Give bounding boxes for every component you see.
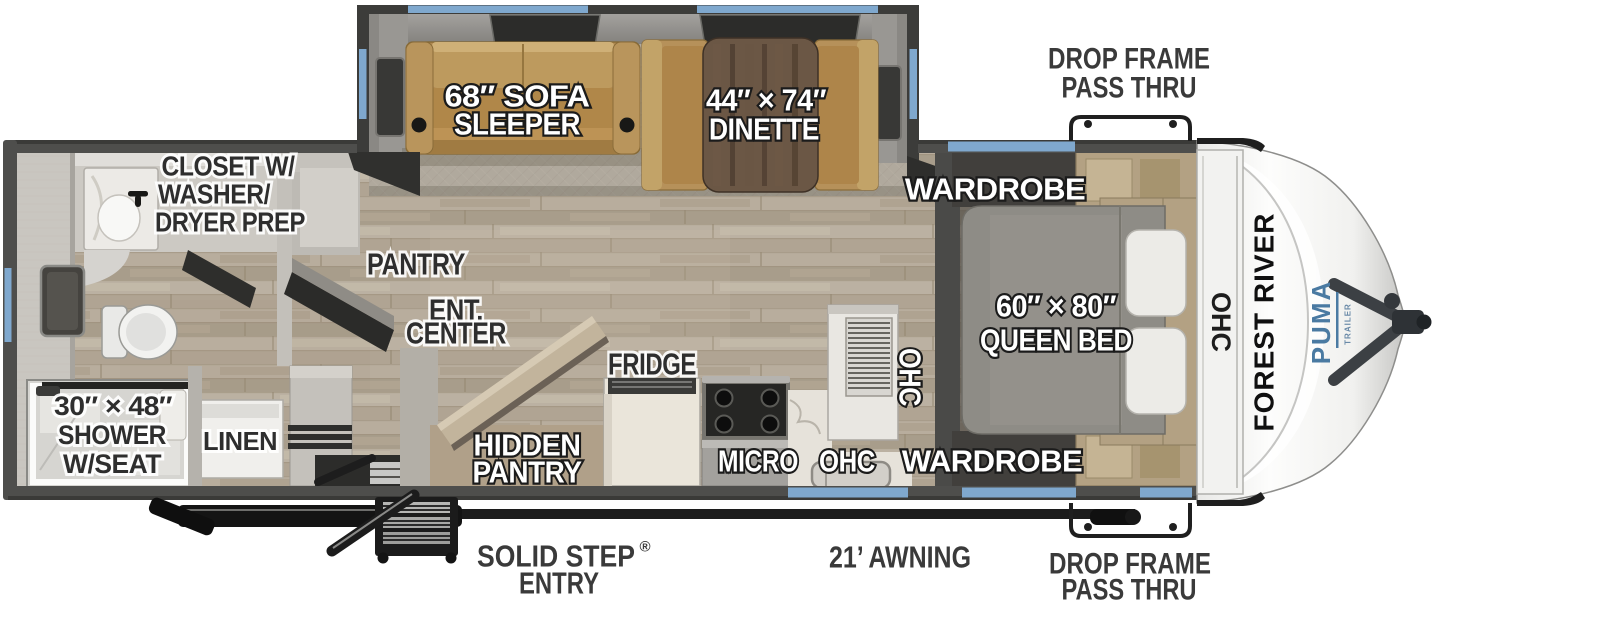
svg-text:PANTRY: PANTRY: [367, 247, 466, 282]
svg-text:PASS THRU: PASS THRU: [1062, 72, 1197, 105]
svg-text:OHC: OHC: [893, 348, 928, 406]
svg-text:®: ®: [639, 539, 650, 556]
svg-text:60″ × 80″: 60″ × 80″: [996, 289, 1117, 324]
svg-text:FOREST RIVER: FOREST RIVER: [1249, 213, 1280, 432]
svg-text:TRAILER: TRAILER: [1344, 303, 1353, 345]
svg-text:ENTRY: ENTRY: [519, 566, 599, 601]
svg-text:DRYER PREP: DRYER PREP: [155, 207, 305, 238]
svg-text:SLEEPER: SLEEPER: [454, 107, 580, 142]
svg-text:W/SEAT: W/SEAT: [63, 449, 162, 479]
svg-text:30″ × 48″: 30″ × 48″: [54, 391, 173, 421]
svg-text:FRIDGE: FRIDGE: [608, 347, 696, 382]
svg-text:WASHER/: WASHER/: [158, 179, 271, 210]
svg-text:21’ AWNING: 21’ AWNING: [829, 540, 971, 575]
svg-text:WARDROBE: WARDROBE: [905, 172, 1085, 207]
svg-text:PASS THRU: PASS THRU: [1062, 574, 1197, 607]
svg-text:MICRO: MICRO: [718, 444, 798, 479]
svg-text:PANTRY: PANTRY: [473, 455, 583, 490]
svg-text:LINEN: LINEN: [203, 426, 277, 456]
svg-text:OHC: OHC: [819, 444, 875, 479]
svg-text:PUMA: PUMA: [1306, 280, 1336, 365]
svg-text:WARDROBE: WARDROBE: [902, 444, 1082, 479]
svg-text:SHOWER: SHOWER: [58, 420, 166, 450]
svg-text:OHC: OHC: [1206, 292, 1236, 352]
svg-text:DINETTE: DINETTE: [709, 112, 819, 147]
svg-text:QUEEN BED: QUEEN BED: [980, 323, 1132, 358]
svg-text:CENTER: CENTER: [406, 316, 506, 351]
svg-text:CLOSET W/: CLOSET W/: [162, 151, 296, 182]
